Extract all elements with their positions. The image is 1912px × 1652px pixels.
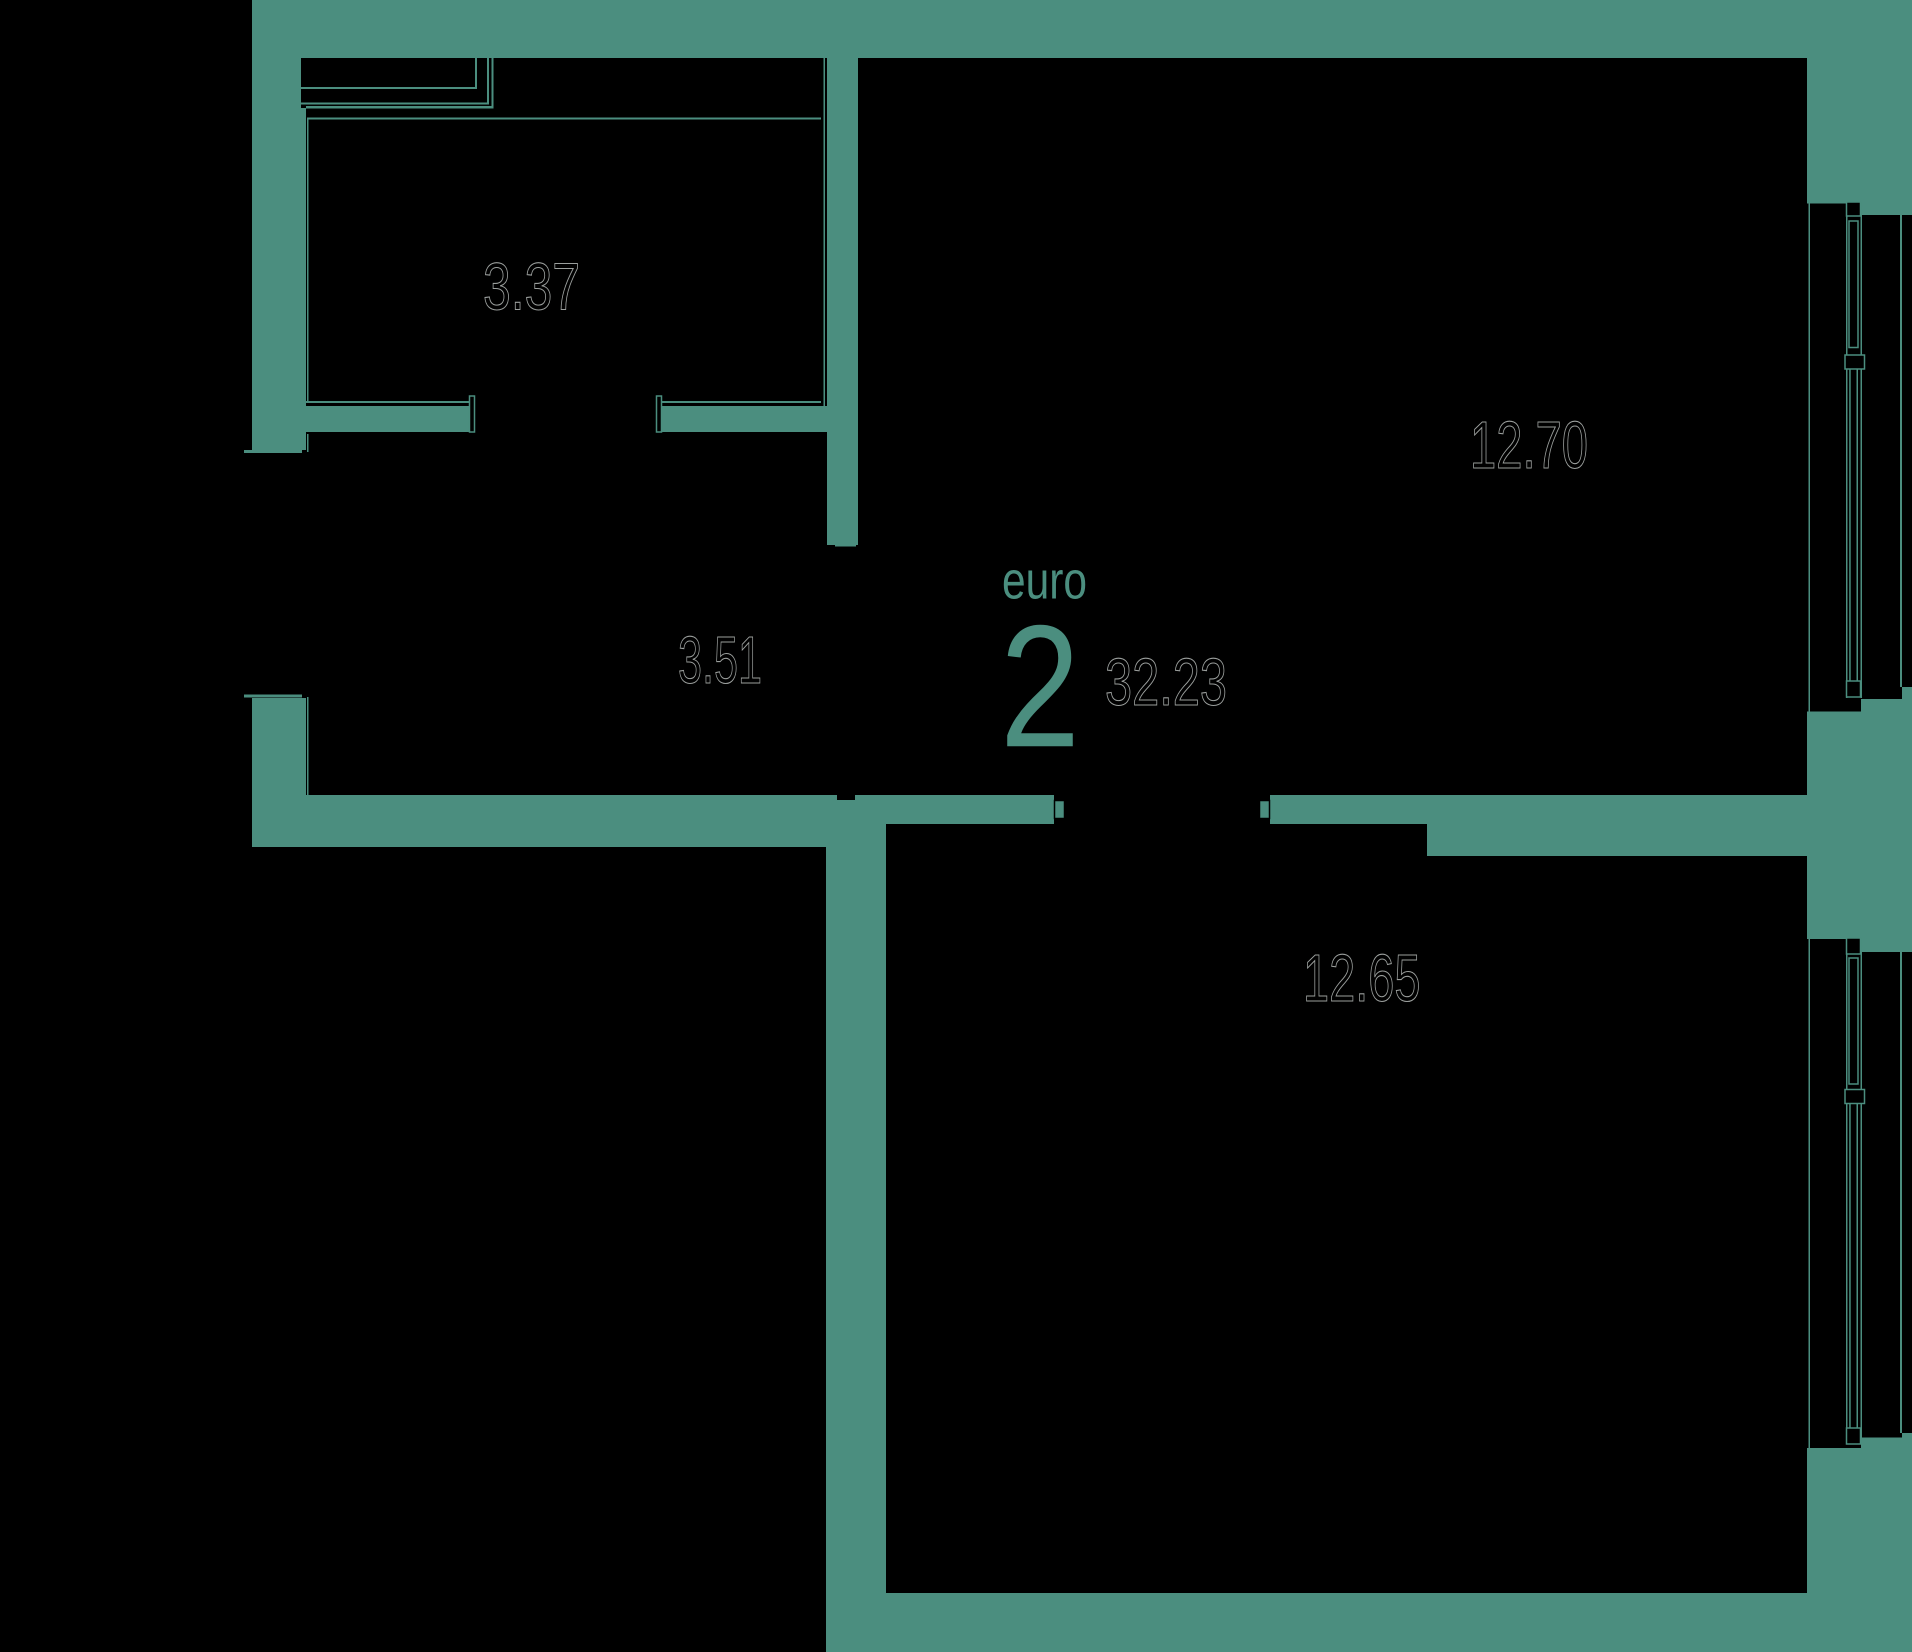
svg-text:3.37: 3.37: [483, 250, 580, 325]
svg-text:2: 2: [1000, 588, 1080, 783]
svg-text:12.65: 12.65: [1303, 941, 1421, 1016]
svg-text:3.51: 3.51: [678, 623, 762, 698]
svg-text:32.23: 32.23: [1105, 645, 1227, 720]
svg-text:12.70: 12.70: [1470, 408, 1588, 483]
